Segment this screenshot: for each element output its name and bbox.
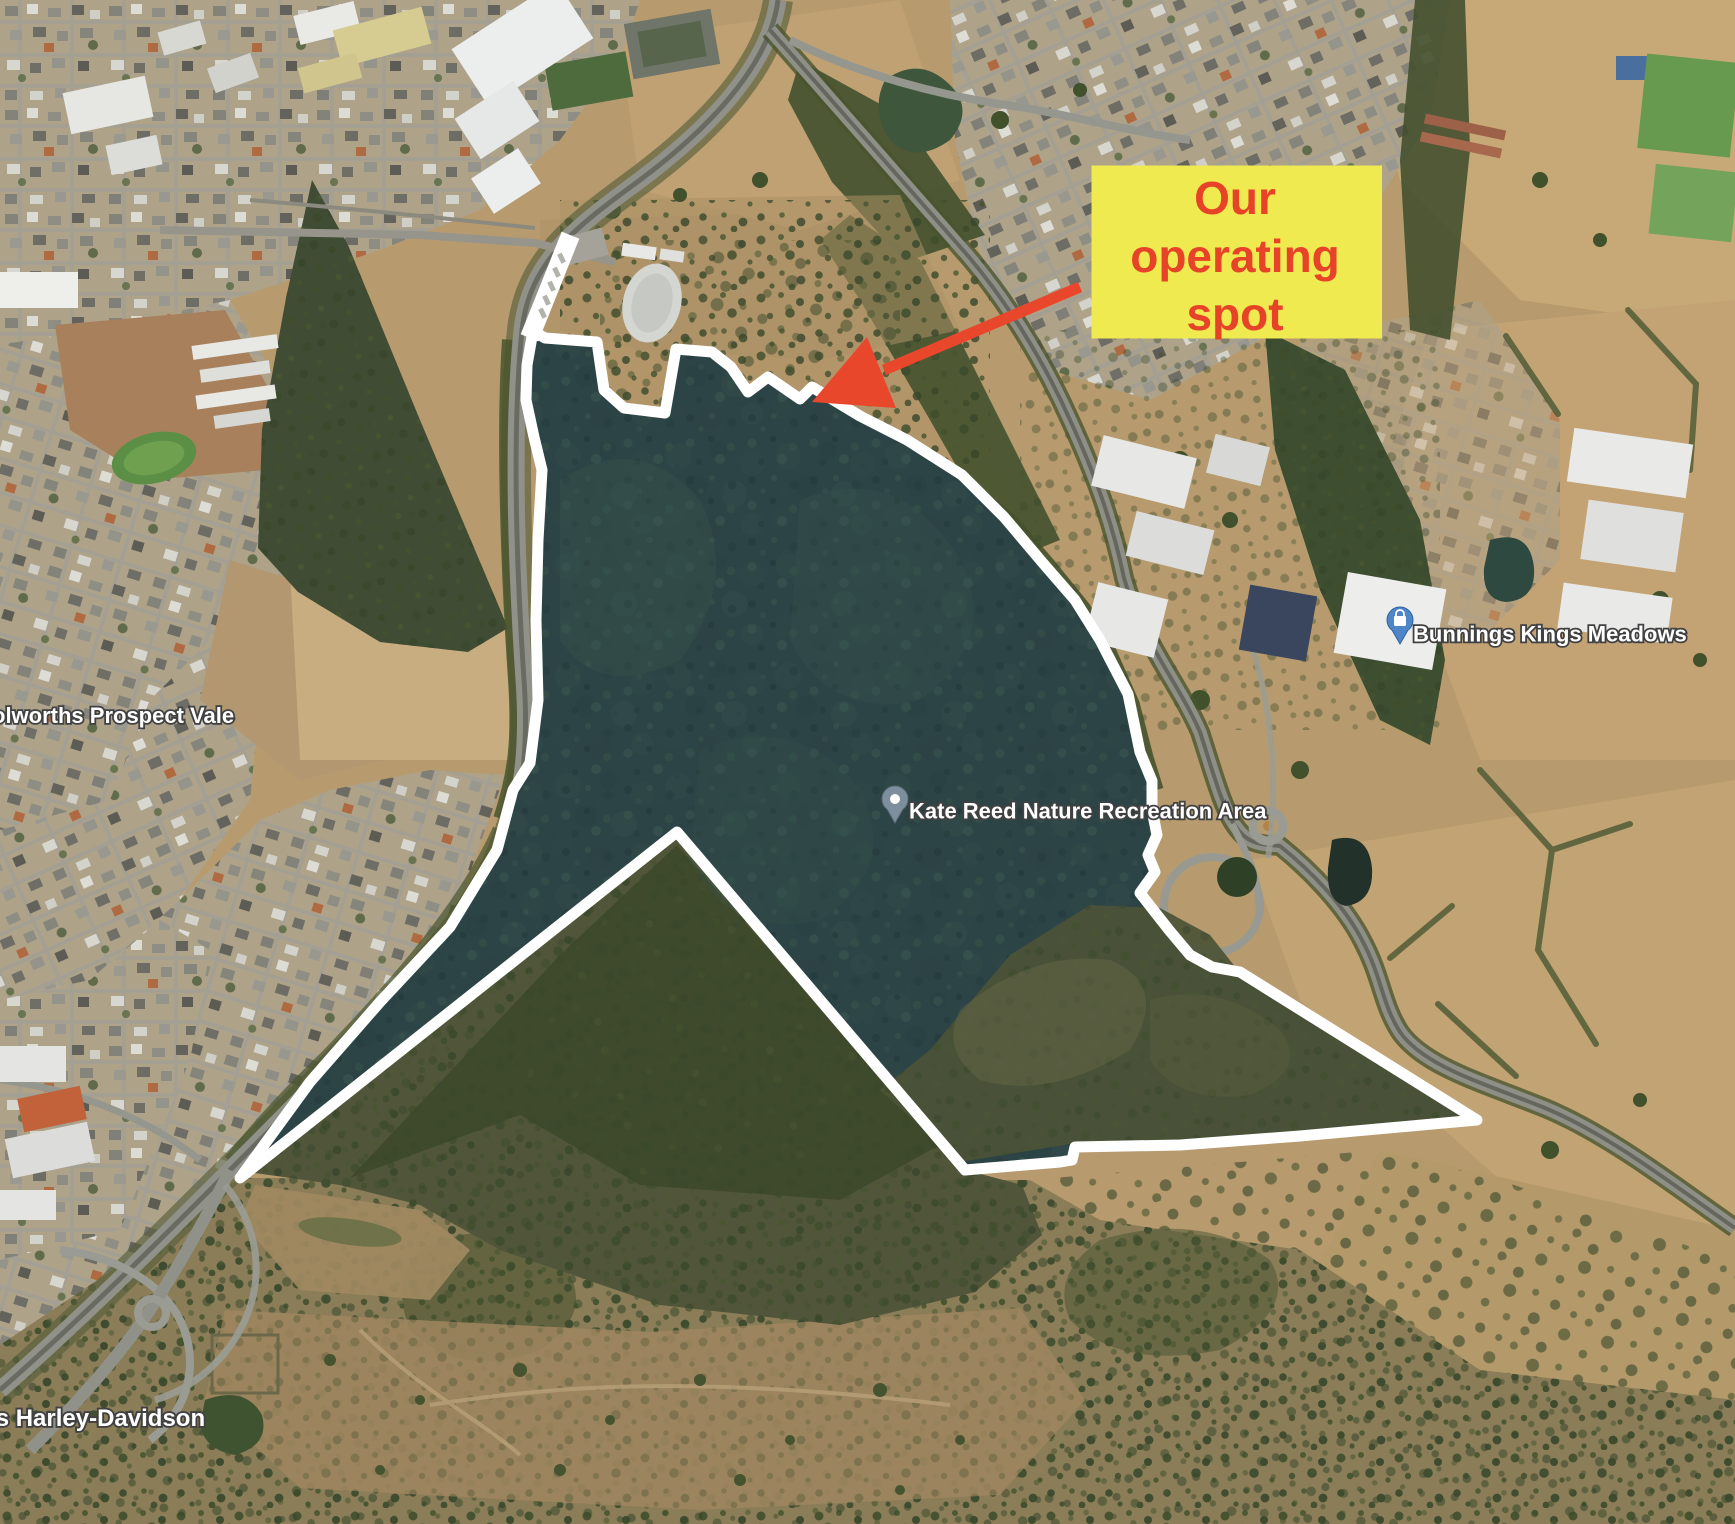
svg-text:Kate Reed Nature Recreation Ar: Kate Reed Nature Recreation Area bbox=[909, 799, 1267, 824]
svg-text:operating: operating bbox=[1130, 230, 1340, 282]
svg-text:olworths Prospect Vale: olworths Prospect Vale bbox=[0, 703, 234, 728]
svg-text:Bunnings Kings Meadows: Bunnings Kings Meadows bbox=[1413, 622, 1687, 647]
svg-text:'s Harley-Davidson: 's Harley-Davidson bbox=[0, 1405, 205, 1432]
svg-text:spot: spot bbox=[1186, 288, 1283, 340]
svg-text:Our: Our bbox=[1194, 172, 1276, 224]
